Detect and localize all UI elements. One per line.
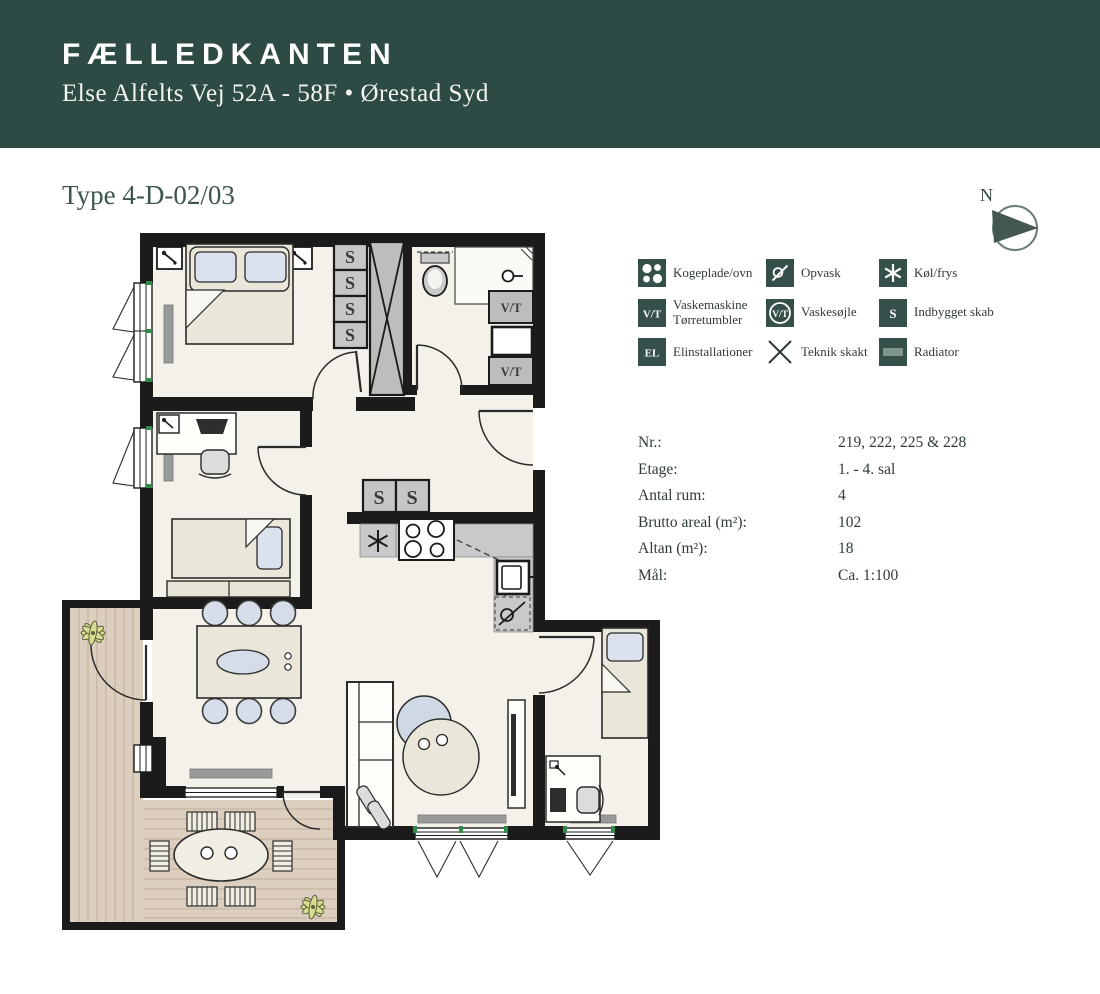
sidelight-window [134,745,152,772]
compass-needle-icon [992,210,1038,243]
office-window [113,426,152,488]
monitor [550,788,566,812]
floor-plan: S S S S V/T V/T S S [55,225,680,940]
legend-label: Kogeplade/ovn [673,266,752,281]
kitchen-sink [495,597,530,630]
bedroom1-window [113,281,152,382]
single-bed [602,628,648,738]
living-west-window [185,788,277,797]
el-outlet-icon [157,247,182,269]
legend-label: Køl/frys [914,266,957,281]
legend-item-tech-shaft: Teknik skakt [766,338,879,366]
closet-letter: S [345,247,355,267]
wash-column-icon: V/T [766,299,794,327]
built-in-closet-icon: S [879,299,907,327]
monitor [196,419,228,434]
tv-screen [511,714,516,796]
detail-row-balcony: Altan (m²):18 [638,536,978,563]
svg-text:S: S [889,306,896,321]
dresser [167,581,290,597]
legend: Kogeplade/ovn Opvask Køl/frys V/T Vaskem… [638,259,1029,366]
outdoor-table [174,829,268,881]
double-bed [186,244,293,344]
legend-label: Vaskesøjle [801,305,857,320]
single-bed [172,519,290,578]
bathroom-appliance [492,327,532,355]
legend-item-wash-column: V/T Vaskesøjle [766,298,879,327]
legend-label: Elinstallationer [673,345,752,360]
tech-shaft-icon [766,338,794,366]
legend-item-dishwasher: Opvask [766,259,879,287]
north-compass: N [966,178,1058,266]
apartment-details: Nr.:219, 222, 225 & 228 Etage:1. - 4. sa… [638,430,978,589]
detail-row-rooms: Antal rum:4 [638,483,978,510]
closet-letter: S [345,299,355,319]
radiator-icon [879,338,907,366]
svg-text:V/T: V/T [772,310,789,320]
legend-label: Indbygget skab [914,305,994,320]
legend-item-radiator: Radiator [879,338,1029,366]
plan-type-title: Type 4-D-02/03 [62,180,235,211]
living-south-window [413,826,508,877]
compass-north-label: N [980,185,993,205]
project-address: Else Alfelts Vej 52A - 58F • Ørestad Syd [62,80,1100,108]
legend-label: Radiator [914,345,959,360]
tv-bench [508,700,525,808]
header-banner: FÆLLEDKANTEN Else Alfelts Vej 52A - 58F … [0,0,1100,148]
project-title: FÆLLEDKANTEN [62,38,1100,72]
detail-row-area: Brutto areal (m²):102 [638,510,978,537]
legend-label: Opvask [801,266,841,281]
coffee-table-large [403,719,479,795]
fridge-freezer-icon [879,259,907,287]
kitchen-closet-letter: S [373,487,384,509]
washer-letter: V/T [501,365,523,379]
bedroom2-window [563,826,615,875]
closet-letter: S [345,325,355,345]
closet-letter: S [345,273,355,293]
washer-letter: V/T [501,301,523,315]
legend-item-fridge: Køl/frys [879,259,1029,287]
legend-item-closet: S Indbygget skab [879,298,1029,327]
legend-label: VaskemaskineTørretumbler [673,298,747,327]
detail-row-nr: Nr.:219, 222, 225 & 228 [638,430,978,457]
detail-row-etage: Etage:1. - 4. sal [638,457,978,484]
sofa [347,682,393,831]
legend-label: Teknik skakt [801,345,868,360]
dishwasher-icon [766,259,794,287]
faucet-icon [503,271,514,282]
detail-row-scale: Mål:Ca. 1:100 [638,563,978,590]
kitchen-closet-letter: S [406,487,417,509]
